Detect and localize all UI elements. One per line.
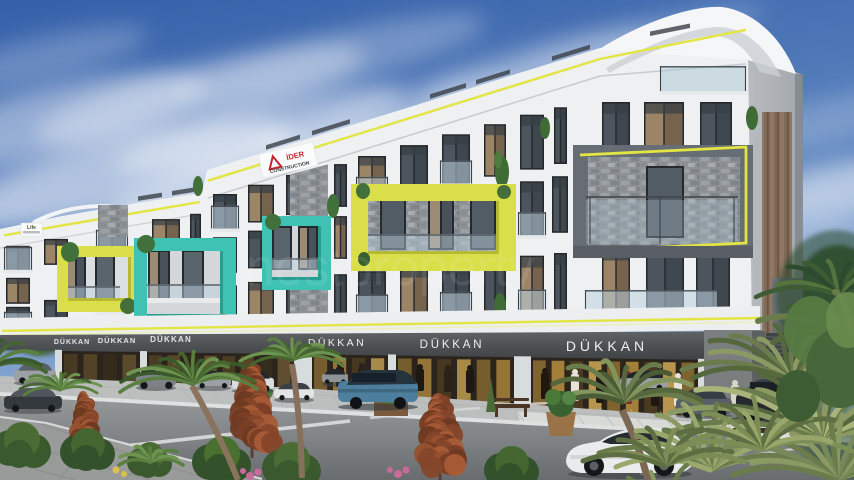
svg-text:Life: Life — [27, 225, 36, 231]
svg-text:nestproperty: nestproperty — [245, 239, 534, 297]
svg-text:DÜKKAN: DÜKKAN — [566, 337, 648, 354]
svg-text:DÜKKAN: DÜKKAN — [54, 337, 90, 346]
svg-text:DÜKKAN: DÜKKAN — [98, 336, 137, 345]
svg-text:DÜKKAN: DÜKKAN — [150, 335, 192, 344]
svg-text:DÜKKAN: DÜKKAN — [420, 339, 485, 351]
